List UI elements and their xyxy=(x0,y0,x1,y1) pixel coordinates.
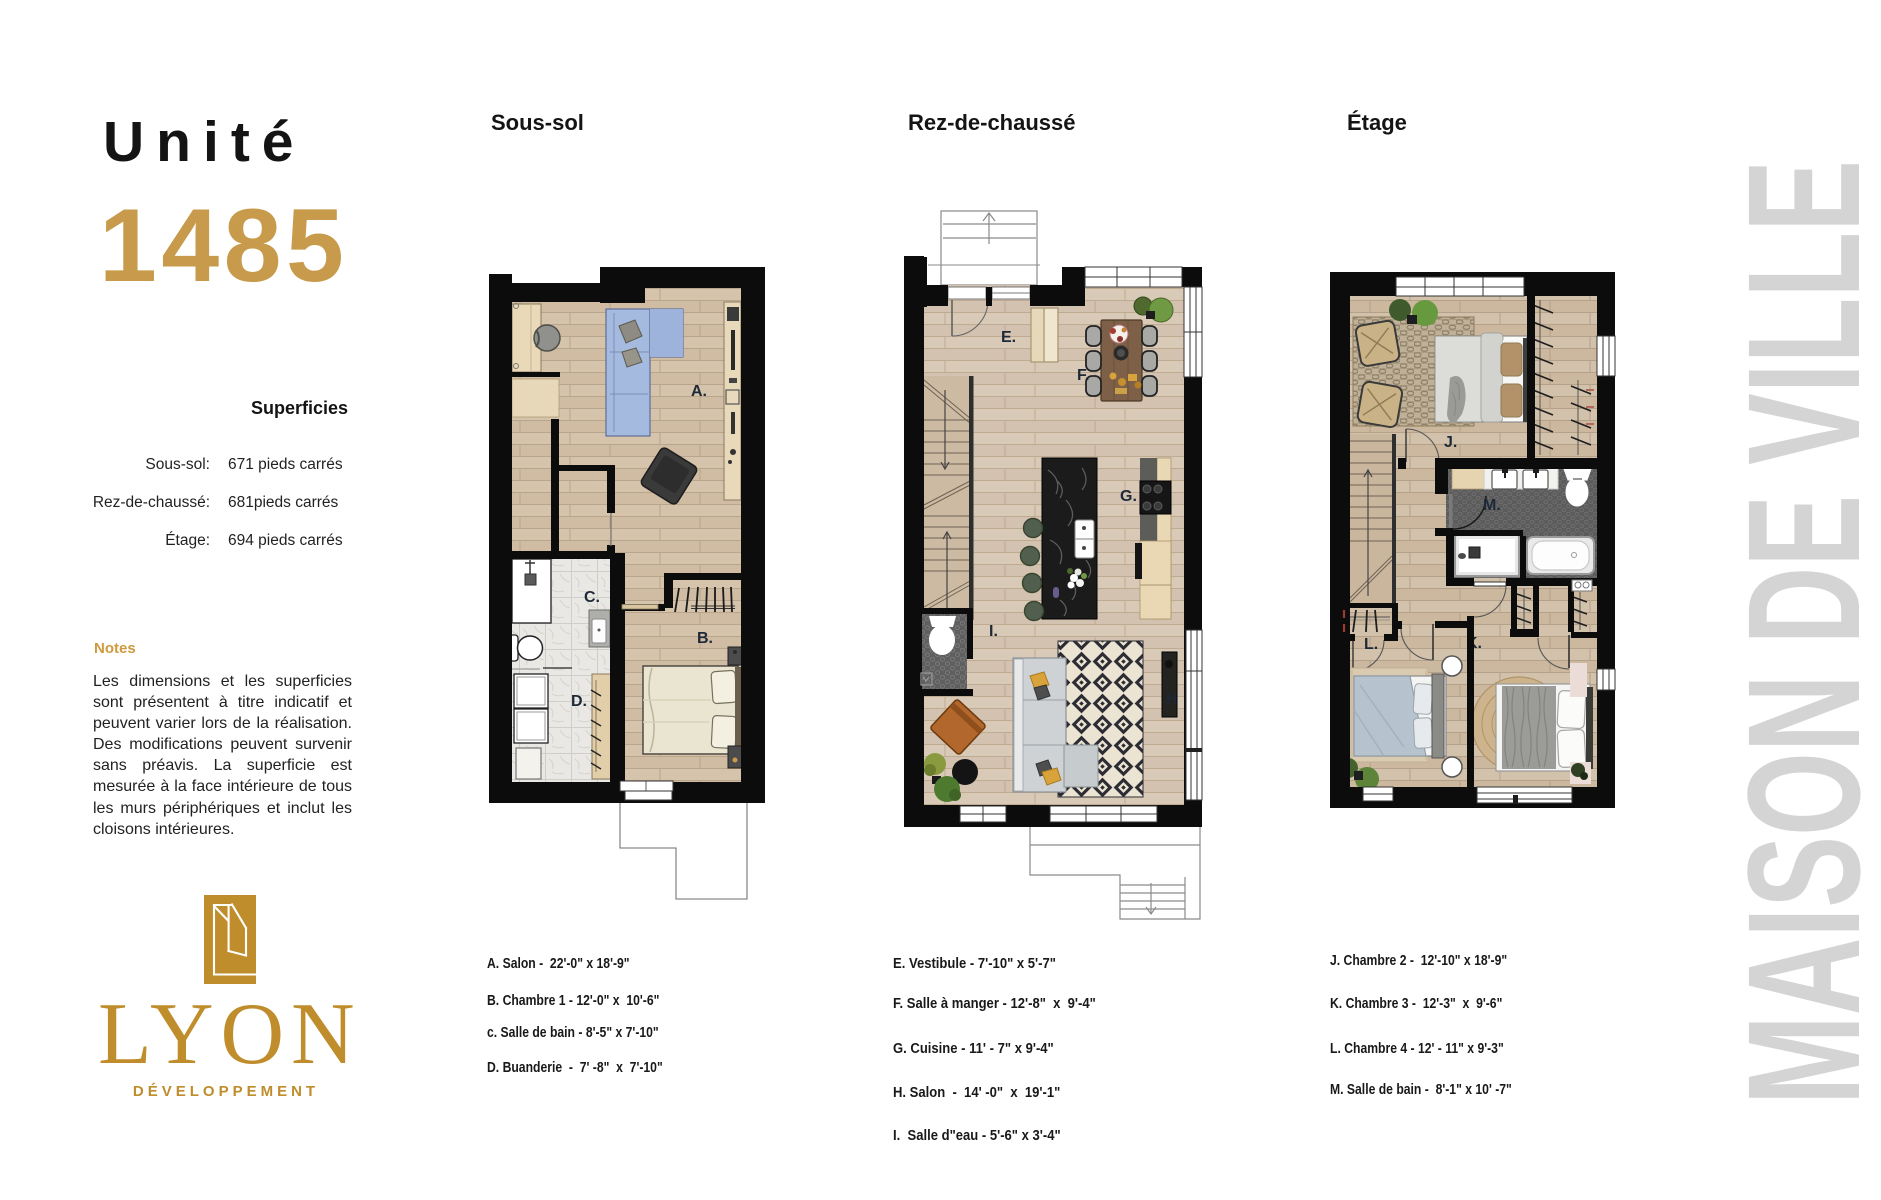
svg-text:I.: I. xyxy=(989,623,998,640)
svg-text:A.: A. xyxy=(691,383,707,400)
svg-text:F.: F. xyxy=(1077,367,1089,384)
svg-text:E.: E. xyxy=(1001,329,1016,346)
svg-text:L.: L. xyxy=(1364,636,1378,653)
svg-text:D.: D. xyxy=(571,693,587,710)
svg-text:J.: J. xyxy=(1444,434,1457,451)
svg-text:G.: G. xyxy=(1120,488,1137,505)
svg-text:B.: B. xyxy=(697,630,713,647)
svg-text:H: H xyxy=(1166,691,1178,708)
svg-text:MAISON DE VILLE: MAISON DE VILLE xyxy=(1714,160,1881,1105)
svg-text:M.: M. xyxy=(1483,497,1501,514)
svg-text:C.: C. xyxy=(584,589,600,606)
